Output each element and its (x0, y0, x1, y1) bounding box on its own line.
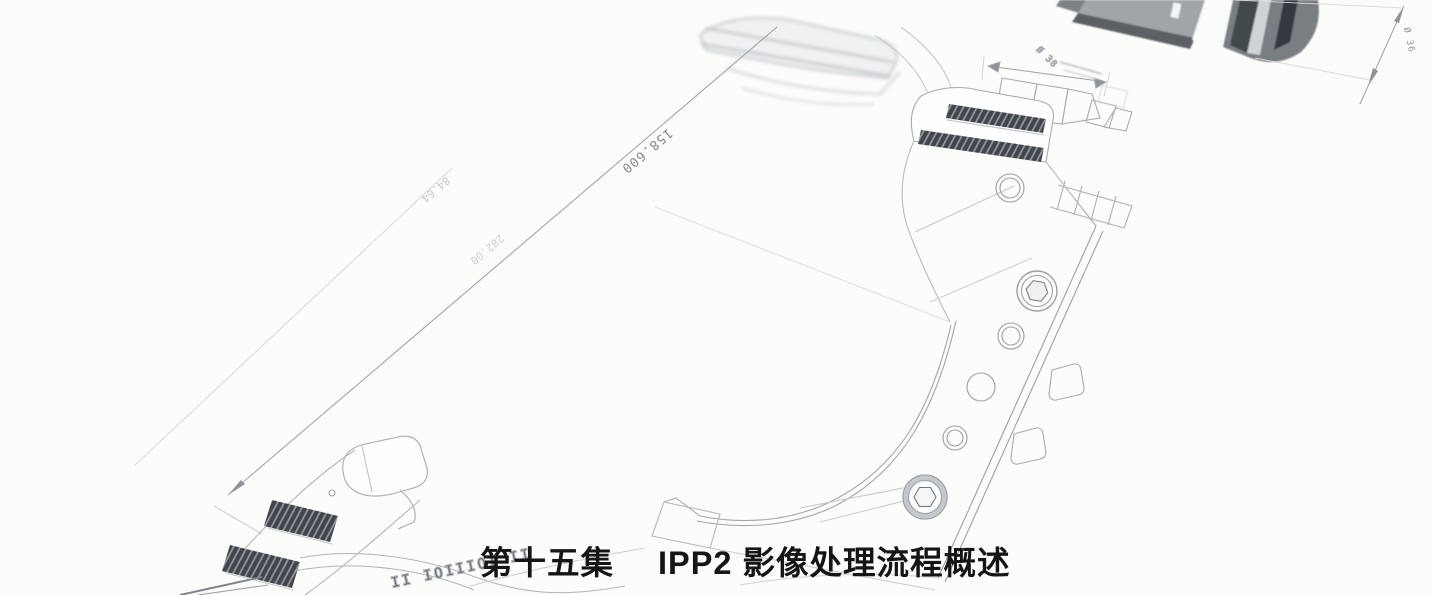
dim-label-main: 158.600 (618, 125, 675, 176)
dim-label-right-diameter: Ø 36 (1401, 26, 1417, 53)
caption: 第十五集 IPP2 影像处理流程概述 (480, 537, 1011, 584)
hex-bolt-upper (1017, 271, 1057, 311)
main-bracket-part: Ø 38 (652, 27, 1132, 590)
dim-label-faint-upper: 84.64 (418, 174, 452, 205)
side-tabs (1011, 364, 1084, 464)
arrowhead-icon (988, 62, 1000, 72)
round-hole (967, 373, 995, 401)
ribbed-nipple (1050, 181, 1132, 228)
dimension-line-main: 158.600 (214, 27, 777, 534)
top-bracket-sketch (700, 18, 900, 105)
video-frame: 158.600 84.64 282.00 Ø 38 (0, 0, 1433, 595)
construction-line-left: 84.64 282.00 (135, 168, 506, 465)
arrowhead-icon (1368, 68, 1378, 86)
knurled-clamp (911, 88, 1053, 162)
camera-photo-fragment (1056, 0, 1319, 108)
arrowhead-icon (1394, 6, 1404, 23)
caption-title: IPP2 影像处理流程概述 (658, 537, 1011, 584)
dim-label-faint-lower: 282.00 (468, 232, 507, 268)
cad-drawing: 158.600 84.64 282.00 Ø 38 (0, 0, 1433, 595)
caption-episode: 第十五集 (480, 537, 614, 584)
extension-line (655, 207, 950, 322)
hex-bolt-lower (903, 475, 947, 519)
holes-and-bolts (903, 174, 1057, 519)
dim-label-top-diameter: Ø 38 (1034, 44, 1060, 70)
arrowhead-icon (228, 480, 245, 495)
